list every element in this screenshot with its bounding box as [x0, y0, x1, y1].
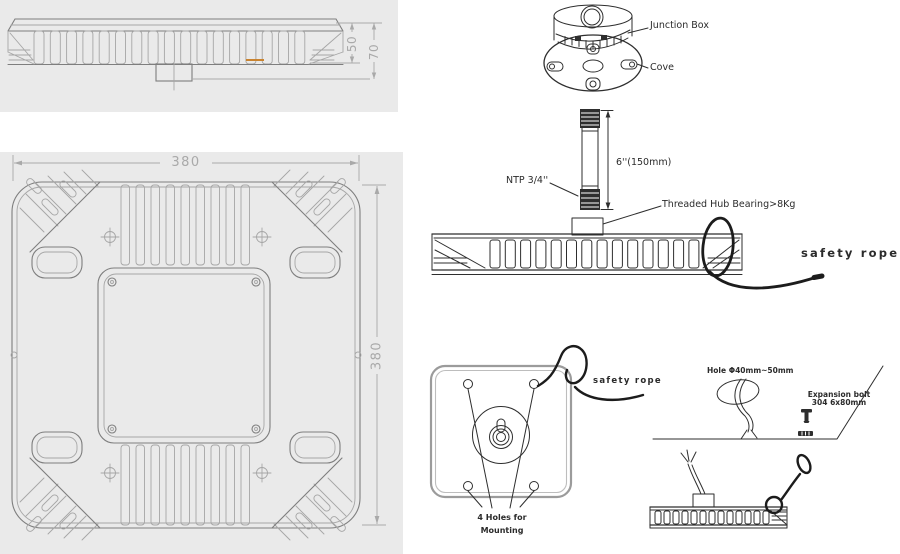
rope-hook-eye — [795, 453, 813, 475]
ntp-leader — [550, 183, 578, 196]
junction-box-label: Junction Box — [650, 21, 709, 31]
installed-rope-loop — [766, 497, 782, 513]
knockout-hole — [584, 9, 600, 25]
expansion-bolt-label: Expansion bolt 304 6x80mm — [800, 391, 878, 408]
mount-holes-line1: 4 Holes for — [462, 512, 542, 525]
installed-fins — [655, 511, 769, 524]
installation-drawing — [415, 0, 900, 554]
dim-total-height: 70 — [367, 37, 381, 67]
fixture-top-outline — [11, 182, 361, 528]
dim-width: 380 — [160, 155, 212, 170]
dim-height: 380 — [370, 332, 385, 380]
mounting-plate-drawing — [431, 346, 643, 508]
left-corner-fins — [434, 240, 485, 268]
junction-box-leader — [628, 28, 648, 33]
hub-bearing-label: Threaded Hub Bearing>8Kg — [662, 200, 795, 210]
pipe-length-label: 6''(150mm) — [616, 158, 671, 168]
hole-size-label: Hole Φ40mm~50mm — [707, 367, 794, 375]
anchor-sleeve-icon — [798, 431, 813, 436]
panel-side-view: 50 70 — [0, 0, 398, 112]
plate-safety-rope-tail — [575, 387, 643, 400]
installed-fixture-drawing — [650, 450, 813, 528]
installed-rope-tail — [781, 474, 800, 500]
pipe-length-dimension — [601, 111, 613, 210]
installation-drawing-sheet: 50 70 — [0, 0, 900, 554]
side-view-drawing — [0, 0, 398, 112]
safety-rope-label-side: safety rope — [801, 247, 899, 260]
mount-holes-line2: Mounting — [462, 525, 542, 538]
right-end-cap — [309, 31, 343, 64]
ceiling-hole — [716, 377, 761, 407]
installation-diagrams: Junction Box Cove NTP 3/4'' 6''(150mm) T… — [415, 0, 900, 554]
center-panel — [98, 268, 270, 443]
expansion-bolt-line2: 304 6x80mm — [800, 399, 878, 407]
ntp-label: NTP 3/4'' — [506, 176, 548, 186]
fin-row — [490, 240, 699, 268]
installed-hub — [693, 494, 714, 507]
fixture-with-hub-drawing — [432, 206, 822, 288]
junction-box-drawing — [544, 5, 648, 91]
pipe-nipple-drawing — [550, 109, 613, 210]
panel-top-view: 380 380 — [0, 152, 403, 554]
safety-rope-label-plate: safety rope — [593, 377, 662, 386]
cove-label: Cove — [650, 63, 674, 73]
mount-holes-label: 4 Holes for Mounting — [462, 512, 542, 538]
hub-leader — [603, 206, 661, 224]
left-end-cap — [8, 31, 34, 64]
dim-fin-height: 50 — [345, 29, 359, 59]
top-view-drawing — [0, 152, 403, 554]
threaded-hub — [572, 218, 603, 235]
installed-wire — [688, 464, 701, 494]
heatsink-fins — [34, 31, 305, 64]
expansion-bolt-icon — [801, 409, 812, 423]
